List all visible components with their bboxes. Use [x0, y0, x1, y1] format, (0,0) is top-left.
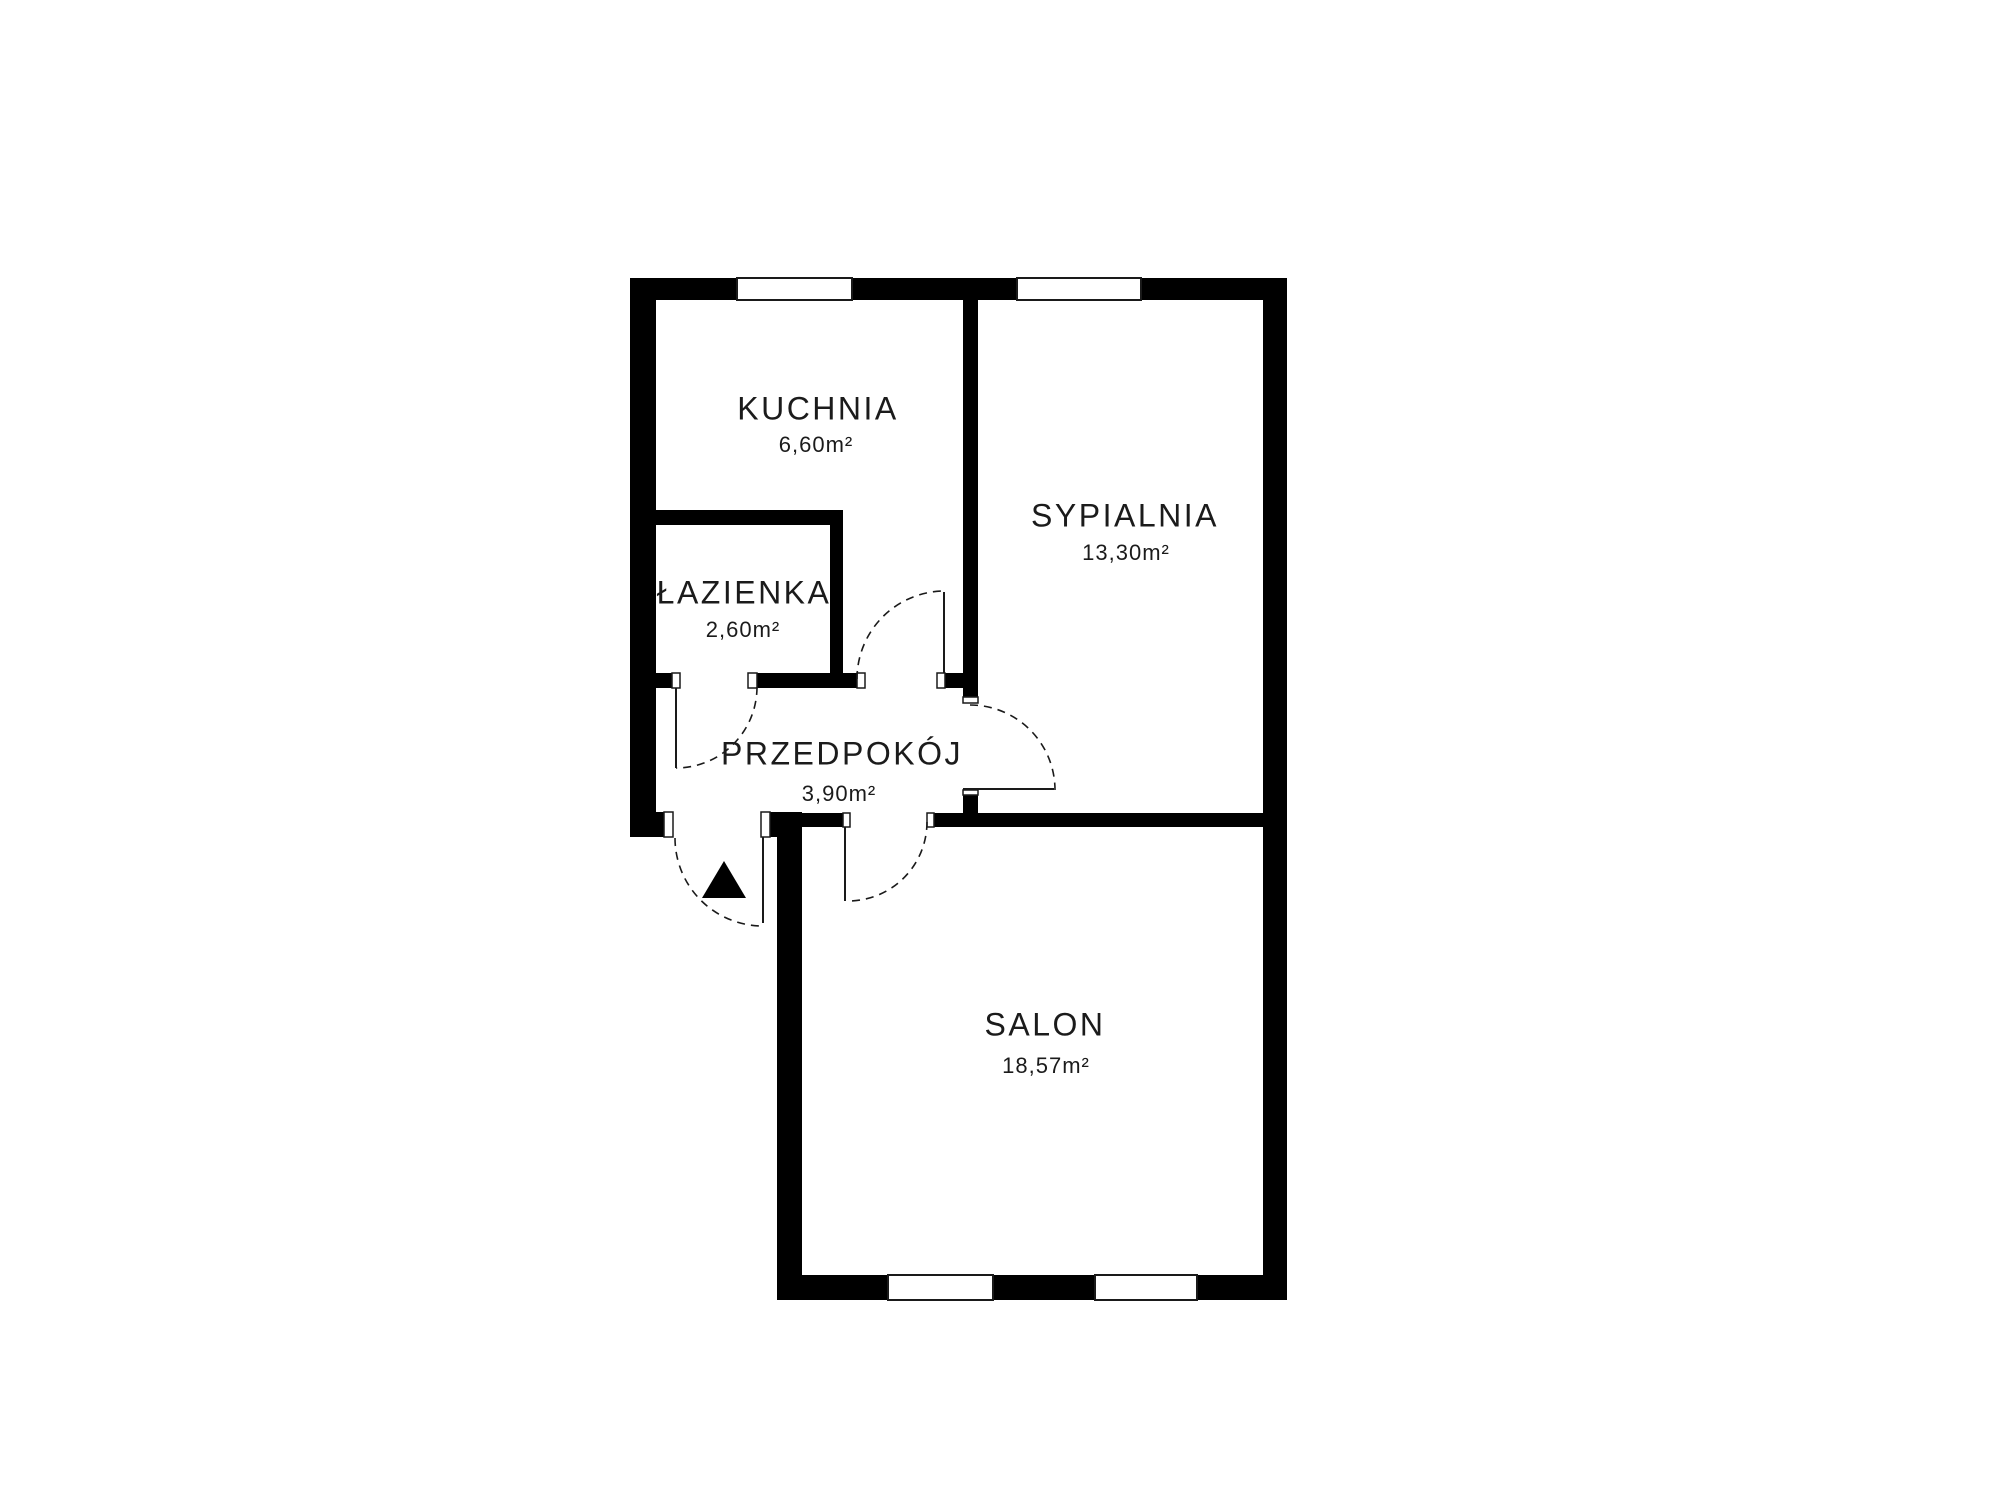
salon-frame-right: [927, 813, 934, 827]
window-salon-right: [1095, 1275, 1197, 1300]
window-bedroom-top: [1017, 278, 1141, 300]
bedroom-frame-bottom: [963, 790, 978, 795]
kitchen-frame-left: [857, 673, 865, 688]
wall-kitchen-door-jamb: [945, 673, 963, 688]
window-salon-left: [888, 1275, 993, 1300]
entrance-arrow: [702, 861, 746, 898]
wall-outer-top: [630, 278, 1287, 300]
floorplan-canvas: KUCHNIA 6,60m² SYPIALNIA 13,30m² ŁAZIENK…: [0, 0, 2000, 1500]
wall-salon-top-right-seg: [934, 813, 1263, 827]
entrance-frame-right: [761, 812, 770, 837]
salon-door-arc: [848, 822, 927, 901]
kitchen-door-arc: [857, 591, 945, 679]
wall-bathroom-right: [830, 510, 843, 688]
wall-salon-left-exterior: [777, 812, 802, 1275]
salon-frame-left: [843, 813, 850, 827]
window-kitchen-top: [737, 278, 852, 300]
bathroom-frame-left: [672, 673, 680, 688]
wall-outer-bottom: [777, 1275, 1287, 1300]
wall-outer-right: [1263, 278, 1287, 1300]
wall-bathroom-bottom-seg: [757, 673, 857, 688]
wall-bathroom-top: [656, 510, 843, 525]
bathroom-door-arc: [676, 687, 757, 768]
bedroom-door-arc: [970, 705, 1055, 790]
wall-hall-bedroom-divider: [963, 300, 978, 703]
bathroom-frame-right: [748, 673, 757, 688]
wall-salon-top-left-seg: [777, 813, 843, 827]
bedroom-frame-top: [963, 697, 978, 703]
kitchen-frame-right: [937, 673, 945, 688]
wall-outer-left: [630, 278, 656, 837]
floorplan-drawing: [0, 0, 2000, 1500]
entrance-frame-left: [664, 812, 673, 837]
wall-bathroom-bottom-stub: [656, 673, 672, 688]
